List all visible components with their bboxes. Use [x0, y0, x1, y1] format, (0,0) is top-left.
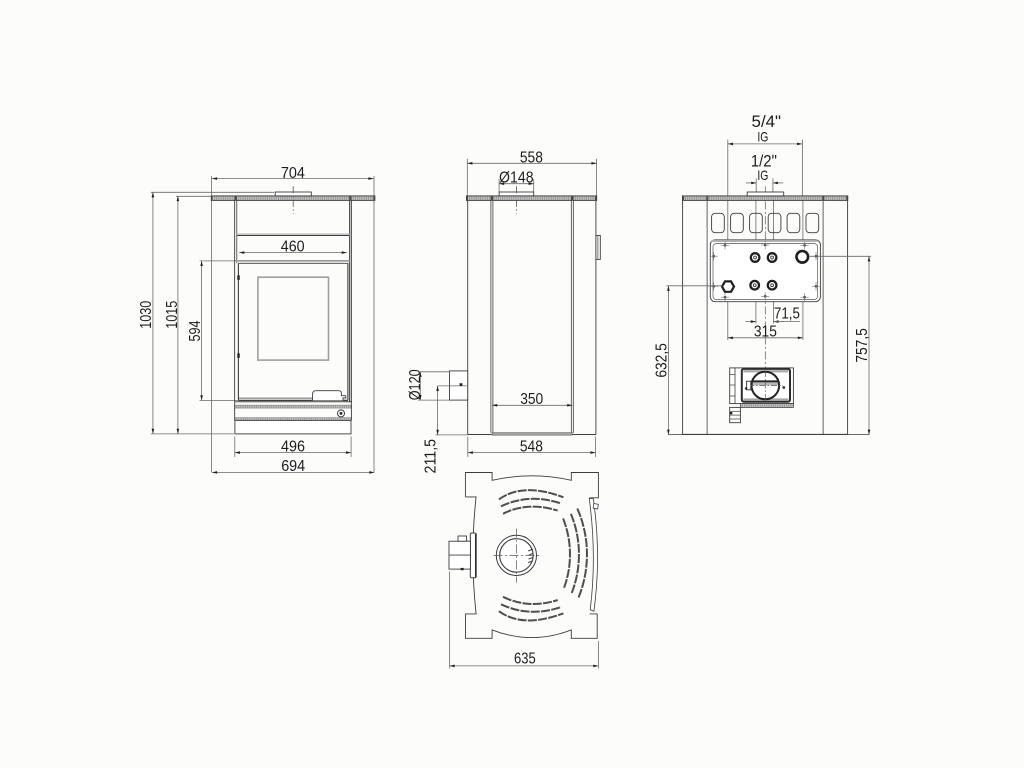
svg-text:632,5: 632,5 [653, 343, 670, 378]
svg-text:IG: IG [757, 167, 768, 183]
svg-text:594: 594 [187, 320, 204, 341]
svg-text:Ø148: Ø148 [499, 169, 534, 186]
svg-text:350: 350 [520, 391, 543, 408]
svg-text:1030: 1030 [138, 301, 155, 329]
svg-text:460: 460 [281, 238, 305, 255]
svg-text:315: 315 [754, 324, 777, 341]
svg-text:704: 704 [281, 165, 305, 182]
svg-text:496: 496 [281, 438, 305, 455]
svg-text:IG: IG [757, 129, 768, 145]
svg-text:694: 694 [281, 458, 305, 475]
svg-text:211,5: 211,5 [423, 439, 440, 474]
svg-text:548: 548 [520, 439, 543, 456]
svg-text:558: 558 [520, 149, 543, 166]
svg-text:Ø120: Ø120 [407, 369, 424, 400]
svg-text:71,5: 71,5 [774, 305, 800, 322]
svg-text:1015: 1015 [164, 301, 181, 329]
svg-text:757,5: 757,5 [854, 328, 871, 363]
svg-text:635: 635 [514, 650, 536, 667]
